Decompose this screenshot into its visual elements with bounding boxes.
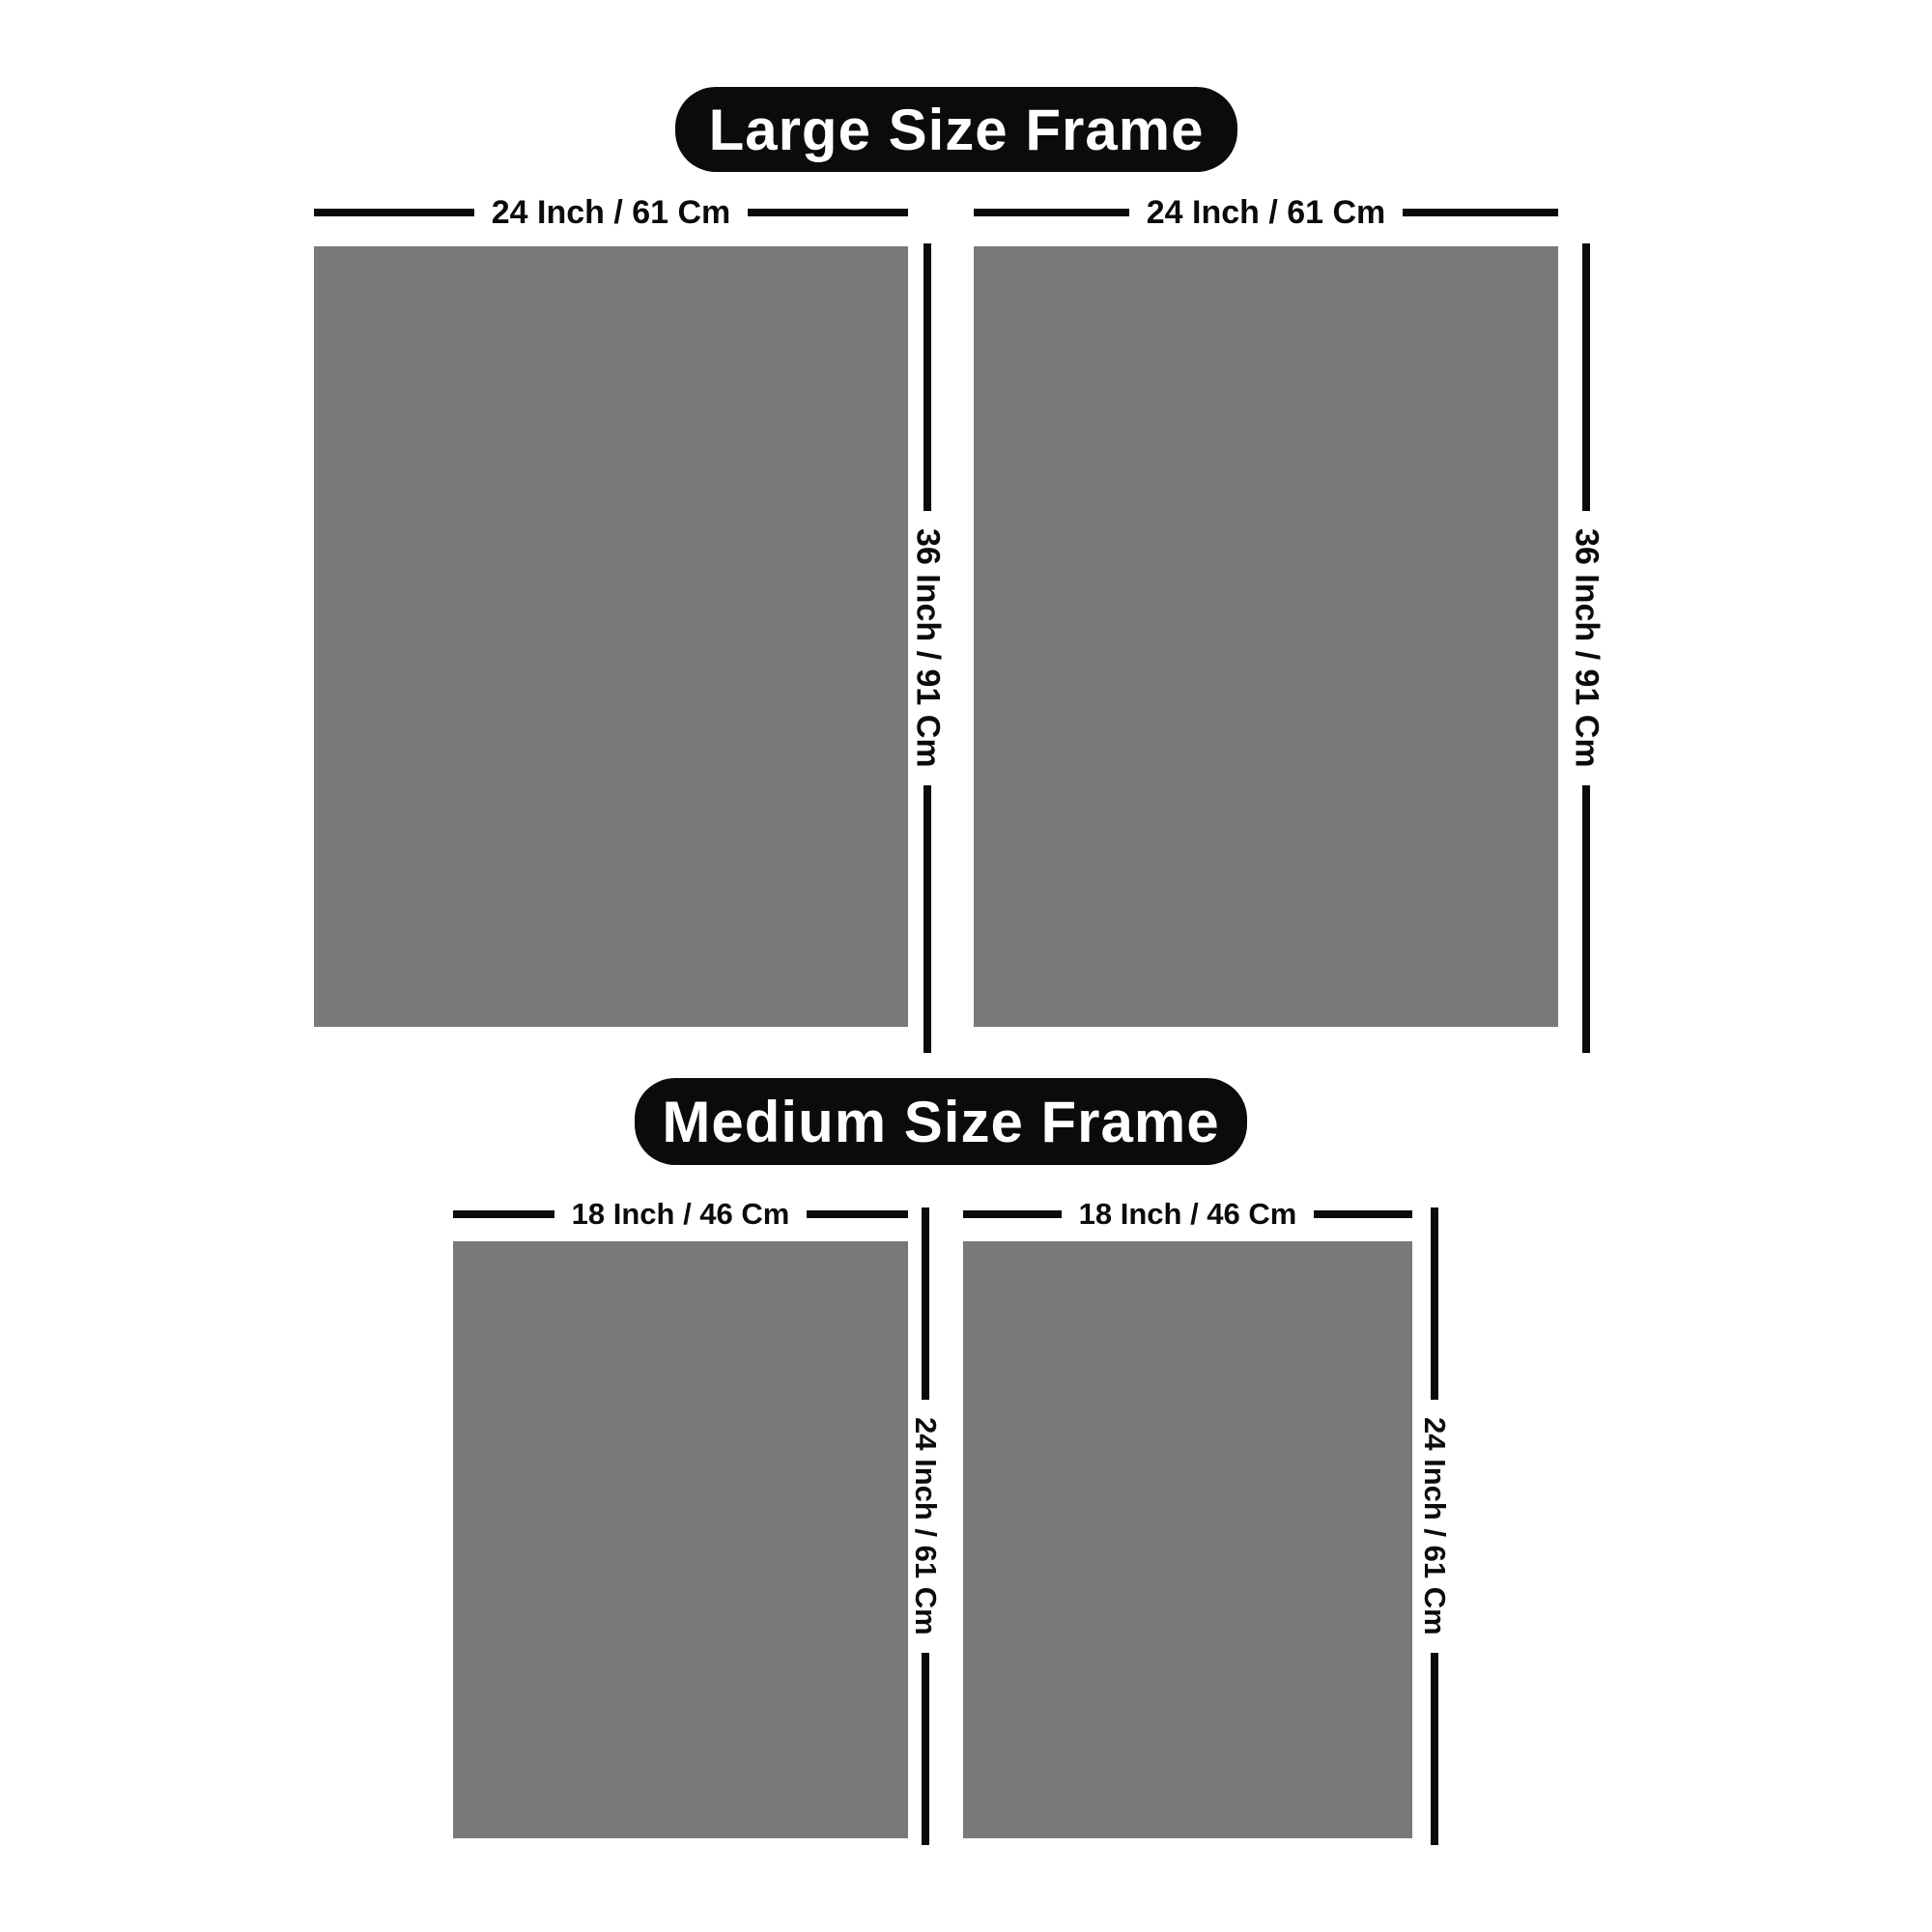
medium-section-title-badge: Medium Size Frame xyxy=(635,1078,1247,1165)
dimension-line-segment xyxy=(922,1207,929,1400)
large-left-height-dimension: 36 Inch / 91 Cm xyxy=(906,243,949,1053)
dimension-line-segment xyxy=(807,1210,908,1218)
medium-left-width-dimension: 18 Inch / 46 Cm xyxy=(453,1191,908,1237)
width-dimension-label: 24 Inch / 61 Cm xyxy=(1147,194,1386,232)
medium-right-width-dimension: 18 Inch / 46 Cm xyxy=(963,1191,1412,1237)
dimension-line-segment xyxy=(963,1210,1062,1218)
large-left-width-dimension: 24 Inch / 61 Cm xyxy=(314,189,908,236)
large-section-title: Large Size Frame xyxy=(709,97,1205,163)
dimension-line-segment xyxy=(923,785,931,1053)
dimension-line-segment xyxy=(453,1210,554,1218)
dimension-line-segment xyxy=(1431,1207,1438,1400)
medium-right-frame-rectangle xyxy=(963,1241,1412,1838)
medium-left-frame-rectangle xyxy=(453,1241,908,1838)
dimension-line-segment xyxy=(1431,1653,1438,1845)
dimension-line-segment xyxy=(974,209,1129,216)
size-guide-infographic: Large Size Frame 24 Inch / 61 Cm 24 Inch… xyxy=(0,0,1932,1932)
medium-right-height-dimension: 24 Inch / 61 Cm xyxy=(1413,1207,1456,1845)
width-dimension-label: 18 Inch / 46 Cm xyxy=(572,1197,790,1232)
large-left-frame-rectangle xyxy=(314,246,908,1027)
dimension-line-segment xyxy=(922,1653,929,1845)
dimension-line-segment xyxy=(1582,243,1590,511)
dimension-line-segment xyxy=(1582,785,1590,1053)
dimension-line-segment xyxy=(314,209,474,216)
width-dimension-label: 18 Inch / 46 Cm xyxy=(1079,1197,1297,1232)
height-dimension-label: 36 Inch / 91 Cm xyxy=(1568,528,1605,768)
height-dimension-label: 24 Inch / 61 Cm xyxy=(1417,1417,1452,1635)
dimension-line-segment xyxy=(1314,1210,1412,1218)
dimension-line-segment xyxy=(748,209,908,216)
width-dimension-label: 24 Inch / 61 Cm xyxy=(492,194,731,232)
large-section-title-badge: Large Size Frame xyxy=(675,87,1237,172)
height-dimension-label: 36 Inch / 91 Cm xyxy=(909,528,947,768)
large-right-height-dimension: 36 Inch / 91 Cm xyxy=(1565,243,1607,1053)
medium-section-title: Medium Size Frame xyxy=(662,1089,1219,1155)
large-right-frame-rectangle xyxy=(974,246,1558,1027)
dimension-line-segment xyxy=(1403,209,1558,216)
dimension-line-segment xyxy=(923,243,931,511)
large-right-width-dimension: 24 Inch / 61 Cm xyxy=(974,189,1558,236)
height-dimension-label: 24 Inch / 61 Cm xyxy=(908,1417,943,1635)
medium-left-height-dimension: 24 Inch / 61 Cm xyxy=(904,1207,947,1845)
